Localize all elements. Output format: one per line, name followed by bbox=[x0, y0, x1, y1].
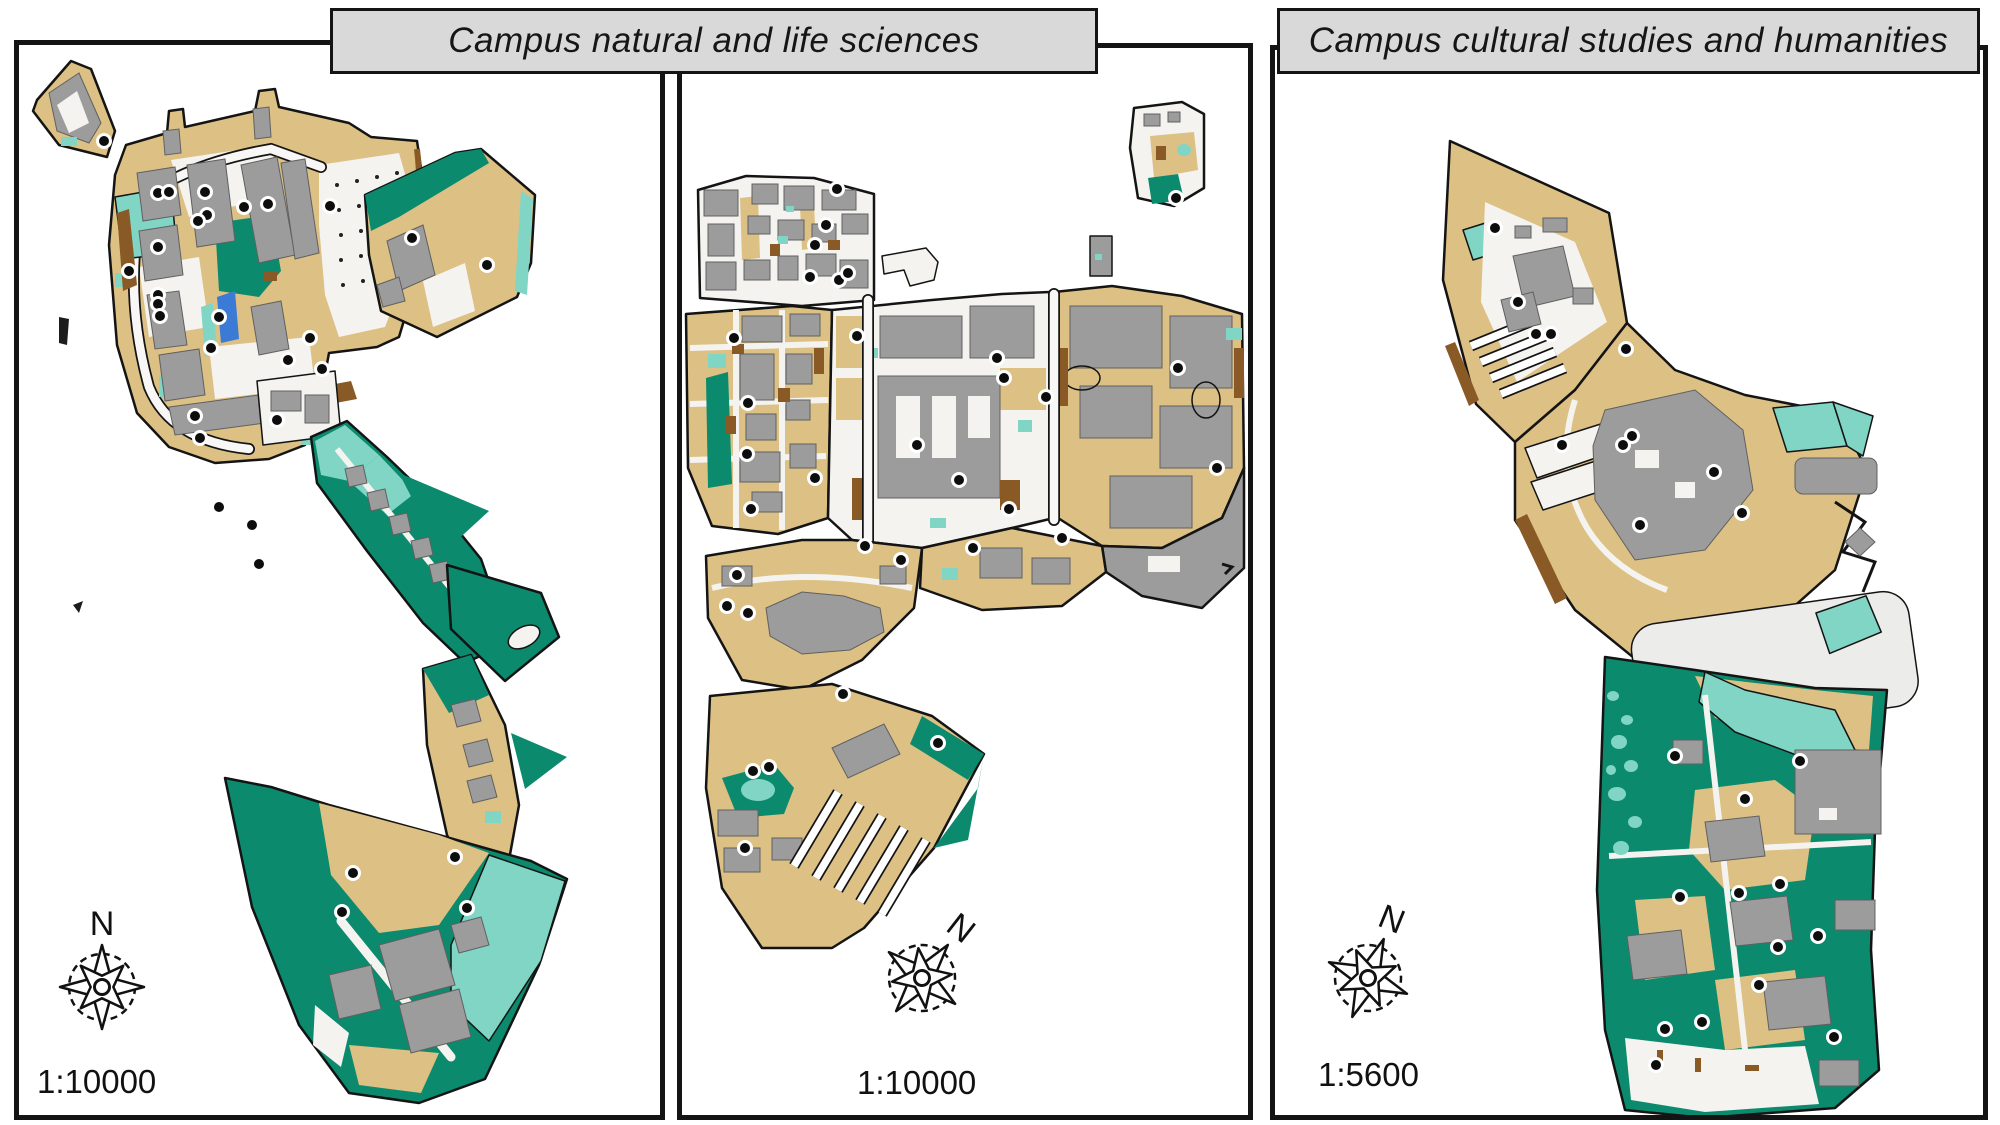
parcel-northeast-small bbox=[1130, 102, 1204, 206]
poi-marker bbox=[895, 554, 908, 567]
title-natural-life-sciences: Campus natural and life sciences bbox=[330, 8, 1098, 74]
poi-marker bbox=[324, 200, 337, 213]
poi-marker bbox=[152, 241, 165, 254]
poi-marker bbox=[154, 310, 167, 323]
poi-marker bbox=[809, 239, 822, 252]
poi-marker bbox=[406, 232, 419, 245]
poi-marker bbox=[98, 135, 111, 148]
poi-marker bbox=[739, 842, 752, 855]
map-cultural: N 1:5600 bbox=[1275, 50, 1983, 1115]
map-west: N 1:10000 bbox=[19, 45, 660, 1115]
poi-marker bbox=[991, 352, 1004, 365]
map-east: N 1:10000 bbox=[682, 48, 1248, 1115]
poi-marker bbox=[745, 503, 758, 516]
poi-marker bbox=[932, 737, 945, 750]
compass-north-label: N bbox=[90, 905, 115, 943]
poi-marker bbox=[1620, 343, 1633, 356]
poi-marker bbox=[1040, 391, 1053, 404]
compass-rose: N bbox=[1313, 886, 1438, 1033]
title-text: Campus cultural studies and humanities bbox=[1309, 21, 1949, 61]
parcel-west bbox=[686, 306, 832, 534]
poi-marker bbox=[741, 448, 754, 461]
poi-marker bbox=[747, 765, 760, 778]
title-cultural-studies: Campus cultural studies and humanities bbox=[1277, 8, 1980, 74]
poi-marker bbox=[1659, 1023, 1672, 1036]
poi-marker bbox=[316, 363, 329, 376]
poi-marker bbox=[1708, 466, 1721, 479]
poi-marker bbox=[1170, 192, 1183, 205]
poi-marker bbox=[1733, 887, 1746, 900]
poi-marker bbox=[998, 372, 1011, 385]
poi-marker bbox=[1512, 296, 1525, 309]
poi-marker bbox=[1056, 532, 1069, 545]
poi-marker bbox=[1669, 750, 1682, 763]
poi-marker bbox=[1736, 507, 1749, 520]
poi-marker bbox=[859, 540, 872, 553]
parcel-east bbox=[1054, 286, 1244, 548]
poi-marker bbox=[1794, 755, 1807, 768]
poi-marker bbox=[1489, 222, 1502, 235]
map-mark-arrow bbox=[73, 601, 83, 613]
poi-marker bbox=[1772, 941, 1785, 954]
poi-marker bbox=[213, 501, 226, 514]
poi-marker bbox=[809, 472, 822, 485]
poi-marker bbox=[192, 215, 205, 228]
poi-marker bbox=[246, 519, 259, 532]
poi-marker bbox=[461, 902, 474, 915]
poi-marker bbox=[253, 558, 266, 571]
poi-marker bbox=[804, 271, 817, 284]
poi-marker bbox=[820, 219, 833, 232]
poi-marker bbox=[163, 186, 176, 199]
poi-marker bbox=[1739, 793, 1752, 806]
parcel-south-stripes bbox=[706, 684, 984, 948]
compass-north-label: N bbox=[939, 906, 982, 951]
parcel-annex bbox=[882, 248, 938, 286]
scale-label: 1:10000 bbox=[37, 1063, 156, 1100]
poi-marker bbox=[1545, 328, 1558, 341]
poi-marker bbox=[262, 198, 275, 211]
poi-marker bbox=[1172, 362, 1185, 375]
poi-marker bbox=[1211, 462, 1224, 475]
scale-label: 1:5600 bbox=[1318, 1056, 1419, 1093]
poi-marker bbox=[953, 474, 966, 487]
poi-marker bbox=[1617, 439, 1630, 452]
poi-marker bbox=[842, 267, 855, 280]
poi-marker bbox=[731, 569, 744, 582]
poi-marker bbox=[282, 354, 295, 367]
poi-marker bbox=[1650, 1059, 1663, 1072]
poi-marker bbox=[763, 761, 776, 774]
map-panel-natural-life-sciences-east: N 1:10000 bbox=[677, 43, 1253, 1120]
poi-marker bbox=[851, 330, 864, 343]
poi-marker bbox=[271, 414, 284, 427]
poi-marker bbox=[1530, 328, 1543, 341]
parcel-fan bbox=[706, 540, 922, 690]
poi-marker bbox=[1753, 979, 1766, 992]
poi-marker bbox=[721, 600, 734, 613]
poi-marker bbox=[911, 439, 924, 452]
compass-rose: N bbox=[60, 905, 145, 1029]
map-panel-natural-life-sciences-west: N 1:10000 bbox=[14, 40, 665, 1120]
poi-marker bbox=[1774, 878, 1787, 891]
poi-marker bbox=[199, 186, 212, 199]
poi-marker bbox=[205, 342, 218, 355]
poi-marker bbox=[304, 332, 317, 345]
figure-canvas: N 1:10000 bbox=[0, 0, 2000, 1125]
poi-marker bbox=[189, 410, 202, 423]
poi-marker bbox=[831, 183, 844, 196]
poi-marker bbox=[238, 201, 251, 214]
poi-marker bbox=[837, 688, 850, 701]
poi-marker bbox=[742, 607, 755, 620]
poi-marker bbox=[123, 265, 136, 278]
poi-marker bbox=[481, 259, 494, 272]
poi-marker bbox=[967, 542, 980, 555]
poi-marker bbox=[1828, 1031, 1841, 1044]
parcel-northwest bbox=[698, 176, 874, 306]
poi-marker bbox=[1812, 930, 1825, 943]
poi-marker bbox=[1556, 439, 1569, 452]
scale-label: 1:10000 bbox=[857, 1064, 976, 1101]
poi-marker bbox=[1674, 891, 1687, 904]
title-text: Campus natural and life sciences bbox=[448, 21, 980, 61]
poi-marker bbox=[1696, 1016, 1709, 1029]
compass-north-label: N bbox=[1373, 897, 1410, 941]
poi-marker bbox=[742, 397, 755, 410]
poi-marker bbox=[449, 851, 462, 864]
poi-marker bbox=[1003, 503, 1016, 516]
map-mark-bracket bbox=[59, 317, 69, 345]
poi-marker bbox=[194, 432, 207, 445]
map-panel-cultural-studies: N 1:5600 bbox=[1270, 45, 1988, 1120]
poi-marker bbox=[347, 867, 360, 880]
poi-marker bbox=[213, 311, 226, 324]
poi-marker bbox=[1634, 519, 1647, 532]
poi-marker bbox=[728, 332, 741, 345]
poi-marker bbox=[336, 906, 349, 919]
